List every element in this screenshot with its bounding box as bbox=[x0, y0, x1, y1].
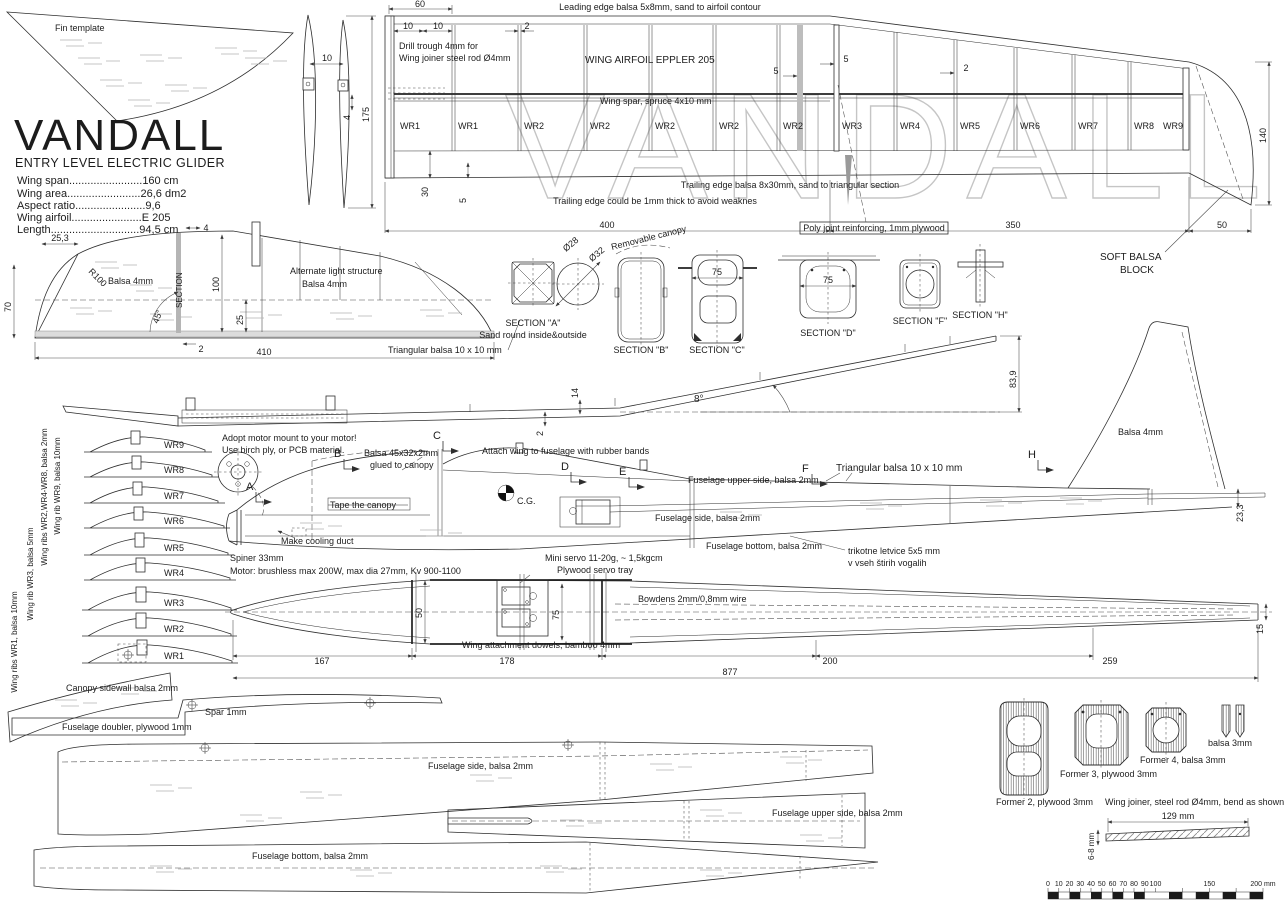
fus-upper-part-label: Fuselage upper side, balsa 2mm bbox=[772, 808, 903, 818]
stack-note-wr1: Wing ribs WR1, balsa 10mm bbox=[10, 591, 19, 693]
top-dim-200: 200 bbox=[822, 656, 837, 666]
blueprint-canvas: VANDALL Fin template 10 4 175 VANDALL EN… bbox=[0, 0, 1286, 907]
rib-stack: WR9 WR8 WR7 WR6 WR5 WR4 WR3 WR2 WR1 Wing… bbox=[10, 428, 238, 693]
ruler-tick: 60 bbox=[1109, 881, 1117, 888]
bowden-note: Bowdens 2mm/0,8mm wire bbox=[638, 594, 747, 604]
section-d-label: SECTION "D" bbox=[800, 328, 855, 338]
stack-note-wr3: Wing rib WR3, balsa 5mm bbox=[26, 527, 35, 620]
section-f-label: SECTION "F" bbox=[893, 316, 947, 326]
balsa-tip-label: balsa 3mm bbox=[1208, 738, 1252, 748]
rib-label: WR3 bbox=[842, 121, 862, 131]
top-dim-15: 15 bbox=[1255, 624, 1265, 634]
ruler-tick: 70 bbox=[1119, 881, 1127, 888]
ruler-tick: 100 bbox=[1150, 881, 1162, 888]
stack-note-wr2: Wing ribs WR2,WR4-WR8, balsa 2mm bbox=[40, 428, 49, 566]
top-dim-259: 259 bbox=[1102, 656, 1117, 666]
section-b-label: SECTION "B" bbox=[614, 345, 669, 355]
stab-alt-structure-2: Balsa 4mm bbox=[302, 279, 347, 289]
stab-dim-100: 100 bbox=[211, 277, 221, 292]
ruler-tick: 30 bbox=[1076, 881, 1084, 888]
rib-label: WR6 bbox=[1020, 121, 1040, 131]
rib-label: WR2 bbox=[719, 121, 739, 131]
stabilizer-plan: SECTION Balsa 4mm R100 Alternate light s… bbox=[3, 222, 520, 360]
spec-aspect-ratio: Aspect ratio.......................9,6 bbox=[17, 200, 161, 212]
fin-balsa-note: Balsa 4mm bbox=[1118, 427, 1163, 437]
spar-label: Spar 1mm bbox=[205, 707, 247, 717]
top-dim-50: 50 bbox=[414, 608, 424, 618]
former3-label: Former 3, plywood 3mm bbox=[1060, 769, 1157, 779]
dim-50: 50 bbox=[1217, 220, 1227, 230]
soft-balsa-note-2: BLOCK bbox=[1120, 265, 1154, 276]
stab-alt-structure-1: Alternate light structure bbox=[290, 266, 383, 276]
fus-side-part-label: Fuselage side, balsa 2mm bbox=[428, 761, 533, 771]
top-dim-75: 75 bbox=[551, 610, 561, 620]
dim-350: 350 bbox=[1005, 220, 1020, 230]
trailing-edge-note-1: Trailing edge balsa 8x30mm, sand to tria… bbox=[681, 180, 899, 190]
cross-sections: SECTION "A" Sand round inside&outside Ø2… bbox=[479, 223, 1007, 355]
section-a-dia-32: Ø32 bbox=[587, 245, 606, 264]
slovenian-note-2: v vseh štirih vogalih bbox=[848, 558, 927, 568]
section-h-label: SECTION "H" bbox=[952, 310, 1007, 320]
stab-dim-70: 70 bbox=[3, 302, 13, 312]
ruler-tick: 10 bbox=[1055, 881, 1063, 888]
dim-30: 30 bbox=[420, 187, 430, 197]
stab-balsa-note: Balsa 4mm bbox=[108, 276, 153, 286]
wing-front-view: 8° 2 14 83,9 bbox=[63, 336, 1022, 436]
former2-label: Former 2, plywood 3mm bbox=[996, 797, 1093, 807]
servo-tray-note: Plywood servo tray bbox=[557, 565, 634, 575]
fuselage-side-view: A B C D E F H Adopt motor mount to your … bbox=[214, 322, 1265, 576]
ruler-tick: 90 bbox=[1141, 881, 1149, 888]
rib-label: WR2 bbox=[783, 121, 803, 131]
motor-mount-note-1: Adopt motor mount to your motor! bbox=[222, 433, 357, 443]
rib-label: WR5 bbox=[960, 121, 980, 131]
title-block: VANDALL ENTRY LEVEL ELECTRIC GLIDER Wing… bbox=[14, 111, 225, 236]
front-dim-14: 14 bbox=[570, 388, 580, 398]
stack-rib-label: WR5 bbox=[164, 543, 184, 553]
canopy-balsa-note-2: glued to canopy bbox=[370, 460, 434, 470]
top-dim-178: 178 bbox=[499, 656, 514, 666]
servo-note: Mini servo 11-20g, ~ 1,5kgcm bbox=[545, 553, 663, 563]
glider-plan-sheet: VANDALL Fin template 10 4 175 VANDALL EN… bbox=[0, 0, 1286, 907]
ruler-tick: 150 bbox=[1203, 881, 1215, 888]
slovenian-note-1: trikotne letvice 5x5 mm bbox=[848, 546, 940, 556]
section-a-note: Sand round inside&outside bbox=[479, 330, 587, 340]
fus-upper-note: Fuselage upper side, balsa 2mm bbox=[688, 475, 819, 485]
section-c-dim-75: 75 bbox=[712, 267, 722, 277]
rib-label: WR2 bbox=[524, 121, 544, 131]
cut-letter-d: D bbox=[561, 461, 569, 473]
dim-5c: 5 bbox=[458, 198, 468, 203]
stack-rib-label: WR4 bbox=[164, 568, 184, 578]
fin-dim-10: 10 bbox=[322, 53, 332, 63]
section-d-dim-75: 75 bbox=[823, 275, 833, 285]
rib-label: WR2 bbox=[655, 121, 675, 131]
dim-10a: 10 bbox=[403, 21, 413, 31]
ruler-tick: 50 bbox=[1098, 881, 1106, 888]
dim-23-3: 23,3 bbox=[1235, 504, 1245, 522]
attach-wing-note: Attach wing to fuselage with rubber band… bbox=[482, 446, 650, 456]
fus-bottom-part-label: Fuselage bottom, balsa 2mm bbox=[252, 851, 368, 861]
dim-140: 140 bbox=[1258, 128, 1268, 143]
dowels-note: Wing attachment dowels, bamboo 4mm bbox=[462, 640, 620, 650]
stack-rib-label: WR1 bbox=[164, 651, 184, 661]
stack-rib-label: WR3 bbox=[164, 598, 184, 608]
fin-dim-175: 175 bbox=[361, 107, 371, 122]
stab-r100: R100 bbox=[87, 266, 109, 288]
rib-label: WR7 bbox=[1078, 121, 1098, 131]
section-a-dia-28: Ø28 bbox=[561, 235, 580, 254]
trailing-edge-note-2: Trailing edge could be 1mm thick to avoi… bbox=[553, 196, 757, 206]
soft-balsa-note-1: SOFT BALSA bbox=[1100, 252, 1162, 263]
stab-dim-45: 45° bbox=[150, 308, 164, 325]
rib-label: WR1 bbox=[400, 121, 420, 131]
cg-label: C.G. bbox=[517, 496, 536, 506]
spec-wing-airfoil: Wing airfoil.......................E 205 bbox=[17, 212, 170, 224]
top-dim-877: 877 bbox=[722, 667, 737, 677]
plan-title: VANDALL bbox=[14, 111, 225, 160]
front-dim-83-9: 83,9 bbox=[1008, 370, 1018, 388]
scale-ruler: 0 10 20 30 40 50 60 70 80 90 100 150 200… bbox=[1046, 881, 1276, 899]
former4-label: Former 4, balsa 3mm bbox=[1140, 755, 1226, 765]
stack-rib-label: WR7 bbox=[164, 491, 184, 501]
triangular-balsa-note: Triangular balsa 10 x 10 mm bbox=[836, 463, 962, 474]
rib-label: WR2 bbox=[590, 121, 610, 131]
ruler-tick: 80 bbox=[1130, 881, 1138, 888]
stab-dim-2: 2 bbox=[198, 344, 203, 354]
dim-5a: 5 bbox=[843, 54, 848, 64]
cooling-duct-note: Make cooling duct bbox=[281, 536, 354, 546]
dim-2a: 2 bbox=[524, 21, 529, 31]
dim-5b: 5 bbox=[773, 66, 778, 76]
stack-rib-label: WR9 bbox=[164, 440, 184, 450]
leading-edge-note: Leading edge balsa 5x8mm, sand to airfoi… bbox=[559, 2, 761, 12]
fuselage-top-view: 50 75 Bowdens 2mm/0,8mm wire Wing attach… bbox=[225, 572, 1272, 682]
canopy-balsa-note-1: Balsa 45x32x2mm bbox=[364, 448, 438, 458]
ruler-tick: 40 bbox=[1087, 881, 1095, 888]
section-c-label: SECTION "C" bbox=[689, 345, 744, 355]
cut-letter-c: C bbox=[433, 430, 441, 442]
joiner-dim-6-8: 6-8 mm bbox=[1087, 833, 1096, 860]
front-dim-2: 2 bbox=[535, 431, 545, 436]
motor-mount-note-2: Use birch ply, or PCB material. bbox=[222, 445, 344, 455]
rib-label: WR9 bbox=[1163, 121, 1183, 131]
stack-rib-label: WR6 bbox=[164, 516, 184, 526]
spec-wing-area: Wing area........................26,6 dm… bbox=[17, 188, 186, 200]
dim-2b: 2 bbox=[963, 63, 968, 73]
formers: Former 2, plywood 3mm Former 3, plywood … bbox=[996, 698, 1284, 860]
ruler-tick: 200 mm bbox=[1250, 881, 1275, 888]
rib-label: WR8 bbox=[1134, 121, 1154, 131]
stack-note-wr9: Wing rib WR9, balsa 10mm bbox=[53, 437, 62, 535]
drill-note-2: Wing joiner steel rod Ø4mm bbox=[399, 53, 511, 63]
cut-h: H bbox=[1028, 449, 1054, 473]
drill-note-1: Drill trough 4mm for bbox=[399, 41, 478, 51]
dim-10b: 10 bbox=[433, 21, 443, 31]
cut-letter-a: A bbox=[246, 481, 254, 493]
fus-bottom-note: Fuselage bottom, balsa 2mm bbox=[706, 541, 822, 551]
dim-60: 60 bbox=[415, 0, 425, 9]
stab-dim-25-3: 25,3 bbox=[51, 233, 69, 243]
spec-wing-span: Wing span........................160 cm bbox=[17, 175, 178, 187]
rib-label: WR4 bbox=[900, 121, 920, 131]
cut-letter-f: F bbox=[802, 463, 809, 475]
fus-side-note: Fuselage side, balsa 2mm bbox=[655, 513, 760, 523]
spar-note: Wing spar, spruce 4x10 mm bbox=[600, 96, 712, 106]
canopy-sidewall-label: Canopy sidewall balsa 2mm bbox=[66, 683, 178, 693]
joiner-dim-129: 129 mm bbox=[1162, 811, 1195, 821]
cut-letter-e: E bbox=[619, 466, 626, 478]
stack-rib-label: WR8 bbox=[164, 465, 184, 475]
fin-dim-4: 4 bbox=[342, 115, 352, 120]
stack-rib-label: WR2 bbox=[164, 624, 184, 634]
airfoil-note: WING AIRFOIL EPPLER 205 bbox=[585, 55, 715, 66]
top-dim-167: 167 bbox=[314, 656, 329, 666]
poly-joint-note: Poly joint reinforcing, 1mm plywood bbox=[803, 223, 945, 233]
wing-joiner-note: Wing joiner, steel rod Ø4mm, bend as sho… bbox=[1105, 797, 1284, 807]
cut-letter-h: H bbox=[1028, 449, 1036, 461]
motor-spec-note: Motor: brushless max 200W, max dia 27mm,… bbox=[230, 566, 461, 576]
dim-400: 400 bbox=[599, 220, 614, 230]
stab-section-bar-label: SECTION bbox=[175, 272, 184, 308]
fin-template-label: Fin template bbox=[55, 23, 105, 33]
doubler-label: Fuselage doubler, plywood 1mm bbox=[62, 722, 192, 732]
rib-label: WR1 bbox=[458, 121, 478, 131]
cut-a: A bbox=[246, 481, 272, 505]
stab-triangular-note: Triangular balsa 10 x 10 mm bbox=[388, 345, 502, 355]
ruler-tick: 0 bbox=[1046, 881, 1050, 888]
plan-subtitle: ENTRY LEVEL ELECTRIC GLIDER bbox=[15, 156, 225, 170]
ruler-tick: 20 bbox=[1066, 881, 1074, 888]
stab-dim-4: 4 bbox=[203, 223, 208, 233]
spinner-note: Spiner 33mm bbox=[230, 553, 284, 563]
flat-parts: Canopy sidewall balsa 2mm Spar 1mm Fusel… bbox=[8, 673, 903, 893]
front-dim-8deg: 8° bbox=[694, 394, 704, 405]
cut-d: D bbox=[561, 461, 587, 485]
section-a-label: SECTION "A" bbox=[506, 318, 561, 328]
stab-dim-25: 25 bbox=[235, 315, 245, 325]
stab-dim-410: 410 bbox=[256, 347, 271, 357]
